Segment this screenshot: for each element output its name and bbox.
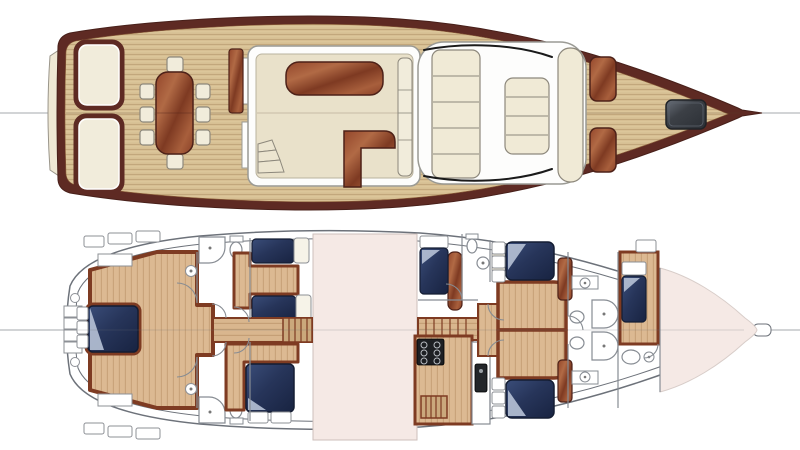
faucet-dot — [190, 270, 193, 273]
saloon — [248, 46, 420, 187]
drain-dot — [603, 345, 606, 348]
galley-sink — [475, 364, 487, 392]
porthole — [71, 294, 80, 303]
deck-box — [108, 233, 132, 244]
single-berth — [252, 296, 296, 320]
toilet-tank — [466, 234, 478, 239]
faucet-dot — [584, 376, 587, 379]
berth-pillow — [296, 295, 311, 320]
yacht-floor-plan-page — [0, 0, 800, 450]
toilet — [467, 239, 477, 253]
engine-room — [313, 234, 417, 440]
dining-chair — [167, 154, 183, 169]
berth-pillow — [294, 238, 309, 263]
step — [258, 160, 284, 173]
faucet-dot — [190, 388, 193, 391]
master-cabinet-starboard — [98, 394, 132, 406]
toilet-tank — [230, 418, 243, 424]
overhead-hatch — [636, 240, 656, 252]
drain-dot — [209, 247, 212, 250]
faucet-dot — [584, 282, 587, 285]
berth-pillow — [420, 236, 448, 248]
yacht-deck-plan-drawing — [0, 0, 800, 450]
wardrobe — [448, 252, 462, 310]
berth-pillow — [271, 412, 291, 423]
deck-sideboard — [229, 49, 243, 113]
aft-bench-seat-starboard — [76, 116, 122, 192]
deck-box — [136, 428, 160, 439]
wardrobe — [558, 360, 572, 402]
dining-chair — [140, 107, 154, 122]
porthole — [71, 358, 80, 367]
berth-pillows — [492, 242, 505, 282]
dining-chair — [140, 84, 154, 99]
galley-stove — [417, 339, 444, 365]
dining-chair — [196, 107, 210, 122]
saloon-table — [286, 62, 383, 95]
faucet-dot — [482, 262, 485, 265]
berth-pillow — [248, 412, 268, 423]
master-cabinet-port — [98, 254, 132, 266]
master-headboard — [77, 307, 88, 348]
anchor-hatch — [666, 100, 706, 129]
galley-hatch — [421, 396, 447, 418]
sunpad-mid — [505, 78, 549, 154]
dining-chair — [167, 57, 183, 72]
toilet-tank — [230, 236, 243, 242]
aft-bench-seats — [76, 42, 122, 192]
foredeck-hatch-port — [590, 57, 616, 101]
dining-chair — [196, 84, 210, 99]
berth-pillows — [492, 378, 505, 418]
deck-box — [84, 423, 104, 434]
deck-box — [136, 231, 160, 242]
drain-dot — [209, 411, 212, 414]
coachroof — [418, 42, 586, 184]
saloon-forward-settee — [398, 58, 412, 176]
toilet — [622, 350, 640, 364]
dining-chair — [140, 130, 154, 145]
single-berth — [252, 239, 294, 263]
double-guest-cabin-aft — [226, 344, 298, 423]
berth-pillow — [622, 262, 646, 275]
foredeck-hatch-starboard — [590, 128, 616, 172]
deck-box — [84, 236, 104, 247]
sunpad-large — [432, 50, 480, 178]
crew-cabin — [620, 240, 658, 364]
drain-dot — [603, 313, 606, 316]
dining-chair — [196, 130, 210, 145]
aft-bench-seat-port — [76, 42, 122, 108]
deck-box — [108, 426, 132, 437]
cabin-floor — [498, 282, 566, 330]
cabin-floor — [498, 330, 566, 378]
twin-basin — [570, 337, 584, 349]
wardrobe — [558, 258, 572, 300]
sunpad-forward — [558, 48, 583, 182]
sink-faucet — [479, 369, 483, 373]
